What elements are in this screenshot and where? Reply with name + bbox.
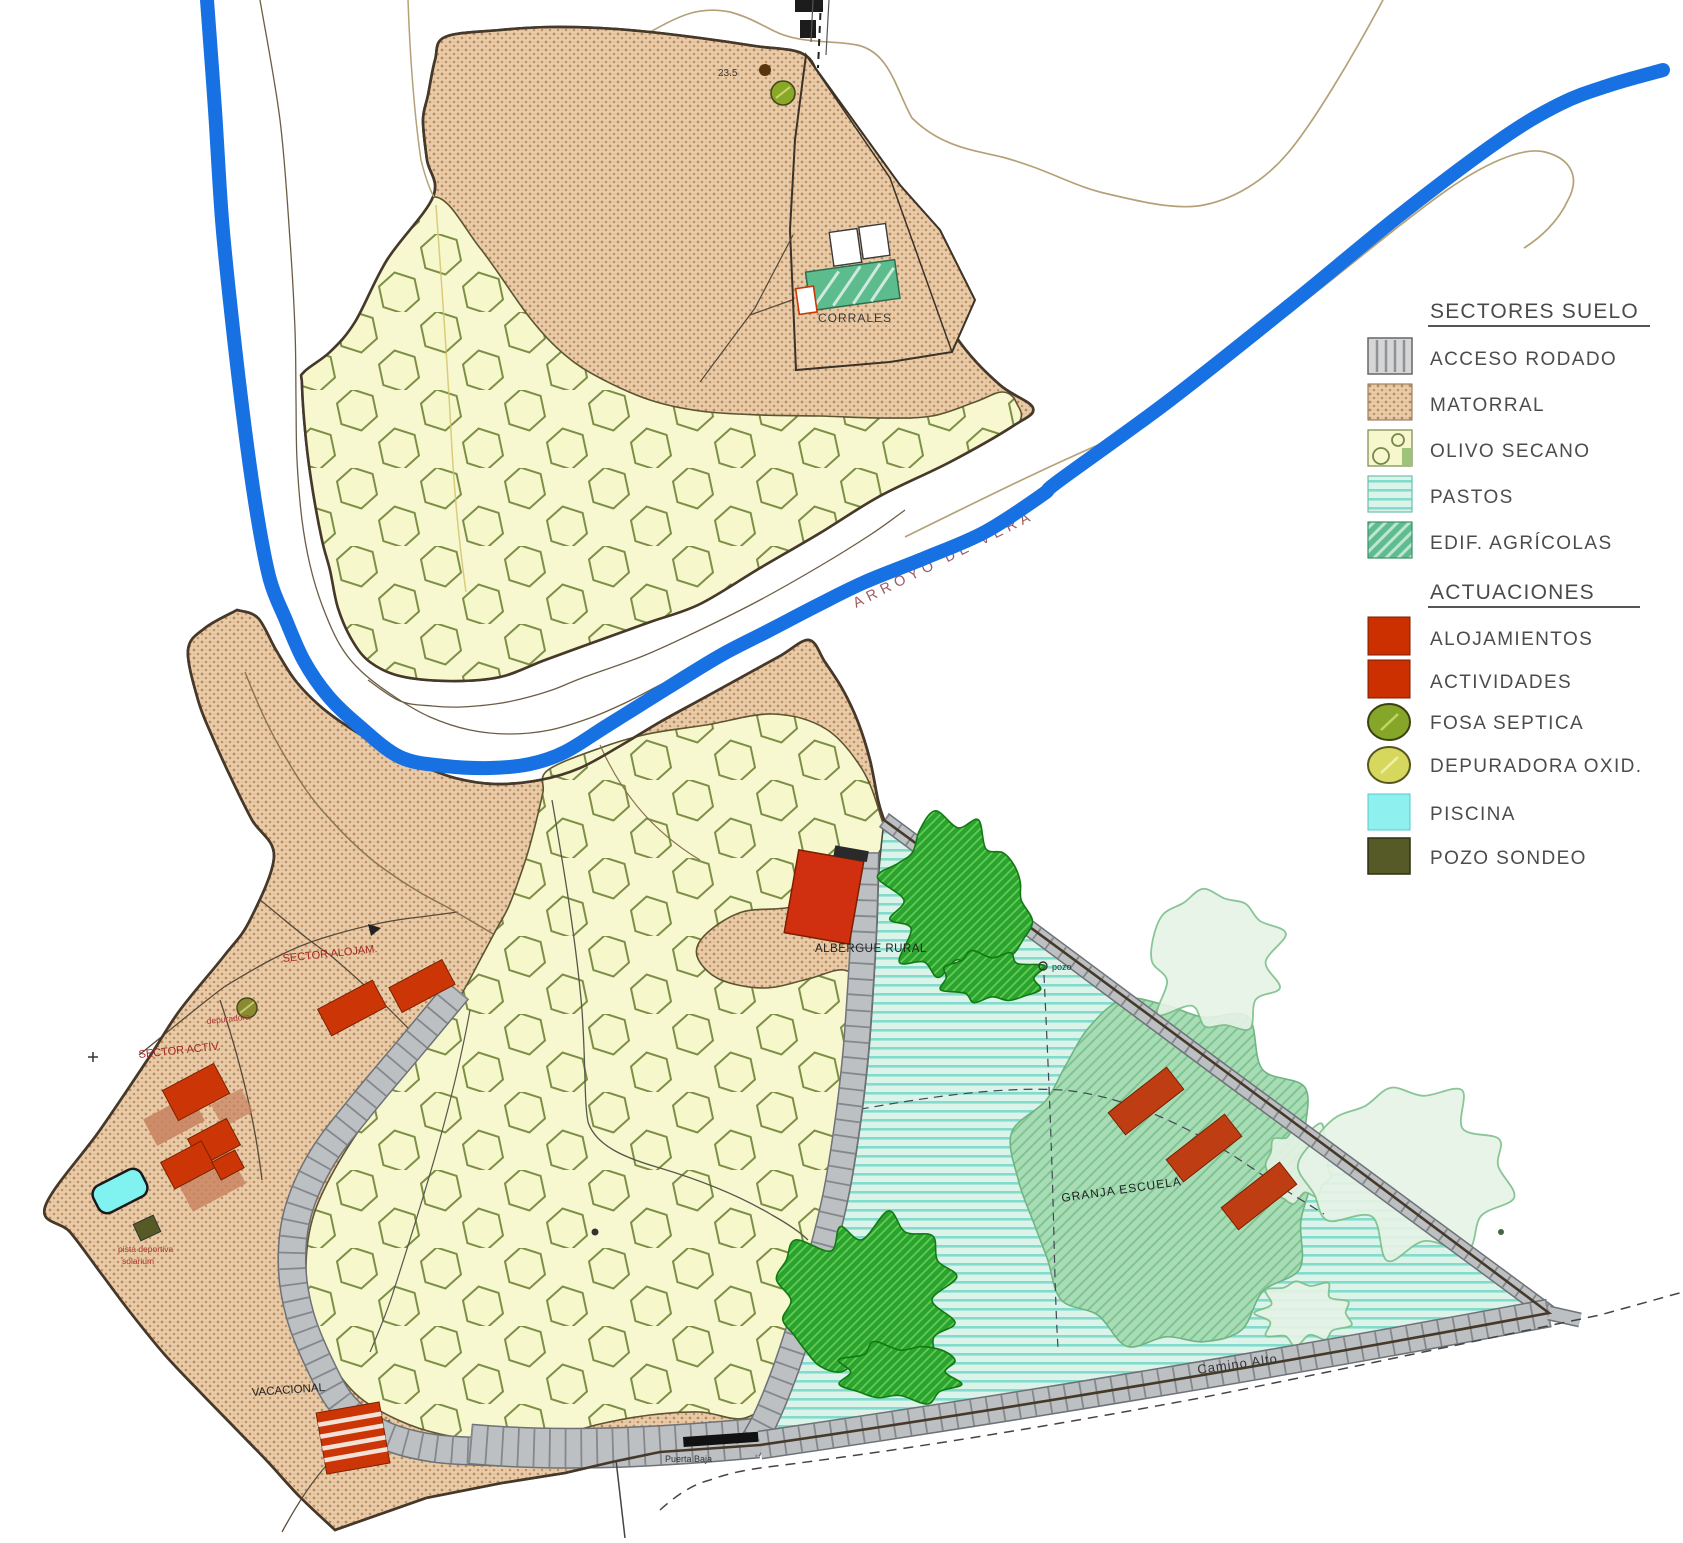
svg-text:ACCESO RODADO: ACCESO RODADO	[1430, 349, 1617, 370]
svg-text:EDIF. AGRÍCOLAS: EDIF. AGRÍCOLAS	[1430, 533, 1613, 554]
svg-text:23.5: 23.5	[718, 68, 738, 79]
svg-text:ALOJAMIENTOS: ALOJAMIENTOS	[1430, 629, 1593, 650]
svg-text:Puerta Baja: Puerta Baja	[665, 1454, 712, 1464]
svg-text:pozo: pozo	[1052, 962, 1072, 972]
svg-text:OLIVO SECANO: OLIVO SECANO	[1430, 441, 1590, 462]
svg-text:pista deportiva: pista deportiva	[118, 1244, 174, 1254]
svg-text:FOSA SEPTICA: FOSA SEPTICA	[1430, 713, 1584, 734]
svg-text:MATORRAL: MATORRAL	[1430, 395, 1545, 416]
svg-text:solarium: solarium	[122, 1256, 154, 1266]
svg-text:ACTUACIONES: ACTUACIONES	[1430, 581, 1595, 604]
svg-text:POZO SONDEO: POZO SONDEO	[1430, 848, 1587, 869]
svg-text:SECTORES SUELO: SECTORES SUELO	[1430, 300, 1639, 323]
svg-text:ACTIVIDADES: ACTIVIDADES	[1430, 672, 1572, 693]
svg-text:PASTOS: PASTOS	[1430, 487, 1514, 508]
svg-text:DEPURADORA OXID.: DEPURADORA OXID.	[1430, 756, 1642, 777]
svg-text:CORRALES: CORRALES	[818, 311, 892, 325]
svg-text:ALBERGUE RURAL: ALBERGUE RURAL	[815, 943, 927, 955]
svg-text:PISCINA: PISCINA	[1430, 804, 1516, 825]
